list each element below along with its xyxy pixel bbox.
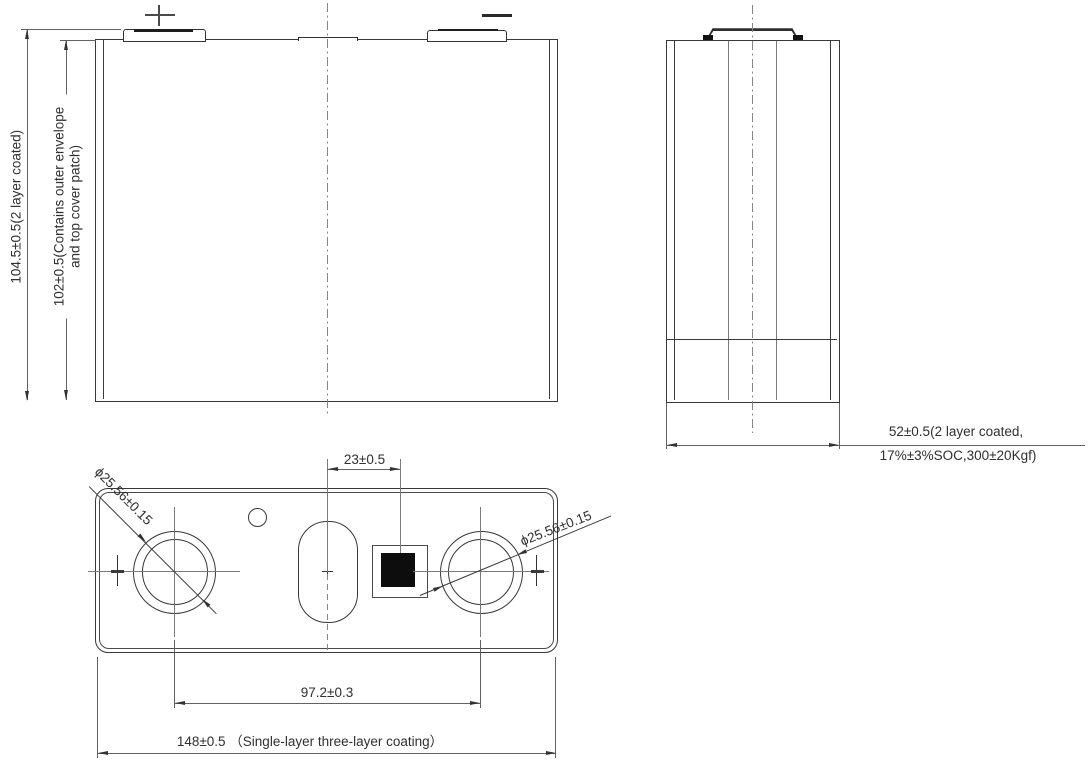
dim-total-height-label: 104.5±0.5(2 layer coated) [8, 112, 24, 302]
side-view-left-envelope-line [674, 41, 675, 400]
dim-case-height-line1: 102±0.5(Contains outer envelope [52, 97, 68, 317]
dim-148-extension-right [555, 657, 556, 758]
dim-104-arrow-up [25, 29, 29, 39]
dim-148-arrow-left [98, 751, 108, 755]
dim-104-arrow-down [25, 391, 29, 401]
dim-148-arrow-right [546, 751, 556, 755]
vent-bump-front [298, 37, 358, 41]
dim-overall-length-label: 148±0.5 （Single-layer three-layer coatin… [110, 734, 510, 750]
dim-148-extension-left [97, 657, 98, 758]
positive-terminal-weld-line [134, 29, 193, 32]
negative-terminal-weld-line [438, 29, 498, 32]
dim-52-line [666, 445, 1085, 446]
electrolyte-hole-circle [248, 508, 267, 527]
dim-thickness-label-line1: 52±0.5(2 layer coated, [876, 424, 1036, 440]
dim-104-line [27, 29, 28, 400]
vent-centerline-solid [327, 459, 328, 572]
dim-102-arrow-down [64, 390, 68, 400]
dim-97-extension-right [480, 640, 481, 708]
front-view-right-envelope-line [549, 40, 550, 399]
drawing-canvas: 104.5±0.5(2 layer coated) 102±0.5(Contai… [0, 0, 1089, 769]
dim-97-arrow-left [175, 701, 185, 705]
side-view-terminal-projection-right [776, 41, 777, 400]
vent-centerline-dashed [327, 574, 328, 651]
right-terminal-inner-circle [448, 539, 514, 605]
dim-148-line [97, 753, 556, 754]
right-terminal-centerline-v [480, 507, 481, 637]
dim-97-line [174, 703, 481, 704]
side-view-right-envelope-line [830, 41, 831, 400]
qr-code-extension-line [400, 459, 401, 553]
left-edge-center-mark [111, 570, 124, 573]
dim-vent-to-code-label: 23±0.5 [329, 452, 400, 468]
dim-52-arrow-right [829, 443, 839, 447]
dim-case-height-label: 102±0.5(Contains outer envelope and top … [52, 95, 83, 319]
right-terminal-centerline-h [413, 571, 549, 572]
front-view-left-envelope-line [103, 40, 104, 399]
dim-terminal-pitch-label: 97.2±0.3 [267, 685, 387, 701]
minus-icon [482, 14, 512, 16]
side-view-centerline [752, 5, 753, 433]
side-view-gasket-left [703, 35, 713, 40]
dim-102-arrow-up [64, 40, 68, 50]
dim-97-arrow-right [470, 701, 480, 705]
dim-52-extension-right [839, 403, 840, 449]
side-view-gasket-right [793, 35, 803, 40]
qr-code-block [381, 553, 415, 587]
dim-97-extension-left [174, 640, 175, 708]
dim-52-extension-left [666, 403, 667, 449]
right-edge-center-mark [531, 570, 544, 573]
dim-case-height-line2: and top cover patch) [67, 97, 83, 317]
side-view-body-outline [666, 40, 840, 403]
side-view-terminal-projection-left [728, 41, 729, 400]
dim-thickness-label-line2: 17%±3%SOC,300±20Kgf) [870, 448, 1046, 464]
dim-52-arrow-left [667, 443, 677, 447]
dim-104-extension-line [21, 29, 121, 30]
plus-icon [158, 5, 161, 26]
front-view-centerline [327, 3, 328, 416]
